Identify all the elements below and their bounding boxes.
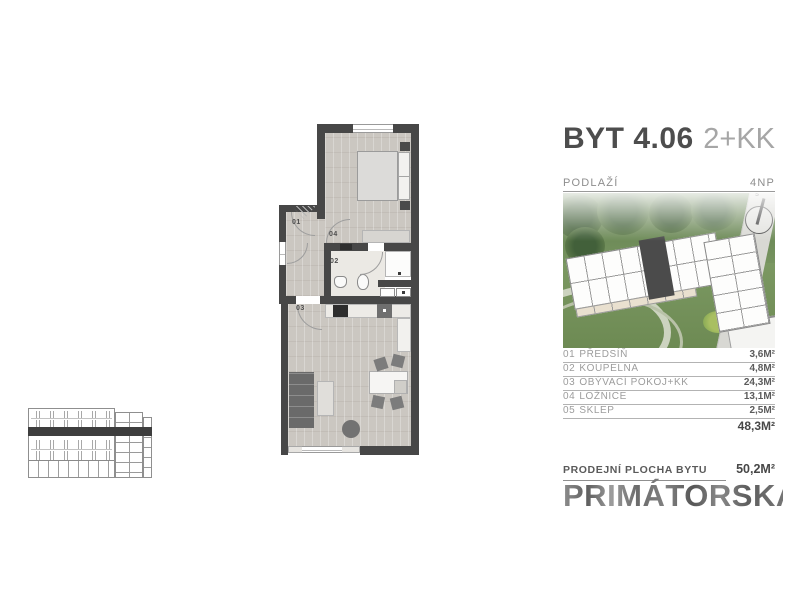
bath-wall-radiator bbox=[340, 244, 352, 250]
room-area: 3,6M² bbox=[749, 349, 775, 360]
room-name: OBÝVACÍ POKOJ+KK bbox=[579, 377, 688, 388]
toilet bbox=[357, 274, 369, 290]
bedroom-window bbox=[353, 124, 393, 133]
room-name: KOUPELNA bbox=[579, 363, 638, 374]
room-row-2: 02KOUPELNA 4,8M² bbox=[563, 363, 775, 377]
wall-right-upper bbox=[411, 124, 419, 304]
unit-layout: 2+KK bbox=[703, 123, 775, 156]
elevation-window-row-1 bbox=[31, 411, 112, 419]
washer-dot bbox=[402, 291, 405, 294]
wall-bath-living-left bbox=[286, 296, 296, 304]
room-area: 24,3M² bbox=[744, 377, 775, 388]
sale-area-value: 50,2M² bbox=[736, 462, 775, 476]
room-row-4: 04LOŽNICE 13,1M² bbox=[563, 391, 775, 405]
chair-3 bbox=[371, 395, 385, 409]
plan-label-living: 03 bbox=[296, 305, 305, 312]
room-area: 4,8M² bbox=[749, 363, 775, 374]
room-list: 01PŘEDSÍŇ 3,6M² 02KOUPELNA 4,8M² 03OBÝVA… bbox=[563, 349, 775, 433]
coffee-table bbox=[317, 381, 334, 416]
info-panel: BYT 4.06 2+KK PODLAŽÍ 4NP bbox=[563, 0, 775, 600]
room-num: 01 bbox=[563, 349, 575, 360]
highlighted-unit bbox=[639, 236, 675, 300]
living-window bbox=[302, 446, 342, 453]
side-table bbox=[394, 380, 407, 394]
nightstand-bottom bbox=[400, 201, 410, 210]
room-num: 05 bbox=[563, 405, 575, 416]
room-name: SKLEP bbox=[579, 405, 614, 416]
unit-number: BYT 4.06 bbox=[563, 122, 694, 156]
room-num: 04 bbox=[563, 391, 575, 402]
total-row: 48,3M² bbox=[563, 419, 775, 433]
bed-pillow-divider bbox=[398, 176, 410, 177]
wall-right-lower bbox=[411, 304, 419, 455]
nightstand-top bbox=[400, 142, 410, 151]
plan-label-hall: 01 bbox=[292, 219, 301, 226]
room-row-5: 05SKLEP 2,5M² bbox=[563, 405, 775, 419]
niche-dot bbox=[398, 272, 401, 275]
elevation-annex bbox=[115, 412, 143, 478]
floor-value: 4NP bbox=[750, 177, 775, 191]
floorplan-card: 01 04 02 03 BYT 4.06 2+KK PODLAŽÍ 4NP bbox=[0, 0, 800, 600]
wall-bath-living-right bbox=[320, 296, 419, 304]
washer-left bbox=[380, 288, 395, 297]
elevation-base bbox=[29, 460, 114, 477]
wall-bed-bath-right-seg bbox=[384, 243, 419, 251]
elevation-window-row-3 bbox=[31, 440, 112, 450]
elevation-highlight-band bbox=[28, 427, 152, 436]
wall-bottom-right bbox=[360, 446, 419, 455]
room-name: LOŽNICE bbox=[579, 391, 627, 402]
cooktop bbox=[333, 305, 348, 317]
room-area: 2,5M² bbox=[749, 405, 775, 416]
unit-header: BYT 4.06 2+KK bbox=[563, 120, 775, 156]
wall-niche-stub bbox=[378, 280, 419, 287]
bedroom-bench bbox=[362, 230, 410, 243]
building-elevation bbox=[28, 406, 152, 478]
room-num: 03 bbox=[563, 377, 575, 388]
wardrobe bbox=[289, 372, 314, 428]
room-row-1: 01PŘEDSÍŇ 3,6M² bbox=[563, 349, 775, 363]
tall-cabinet bbox=[397, 318, 411, 352]
elevation-main-block bbox=[28, 408, 115, 478]
room-area: 13,1M² bbox=[744, 391, 775, 402]
kitchen-sink-dot bbox=[383, 309, 386, 312]
wall-left-lower bbox=[281, 304, 288, 455]
ottoman bbox=[342, 420, 360, 438]
hall-left-door bbox=[279, 242, 286, 265]
room-name: PŘEDSÍŇ bbox=[579, 349, 628, 360]
site-map: S bbox=[563, 193, 775, 348]
sink bbox=[334, 276, 347, 288]
total-area: 48,3M² bbox=[738, 419, 775, 433]
bed bbox=[357, 151, 398, 201]
room-row-3: 03OBÝVACÍ POKOJ+KK 24,3M² bbox=[563, 377, 775, 391]
project-brand: PRIMÁTORSKÁ bbox=[563, 478, 783, 514]
plan-label-bedroom: 04 bbox=[329, 231, 338, 238]
floor-row: PODLAŽÍ 4NP bbox=[563, 177, 775, 192]
plan-label-bath: 02 bbox=[330, 258, 339, 265]
floor-label: PODLAŽÍ bbox=[563, 177, 618, 191]
sale-area-label: PRODEJNÍ PLOCHA BYTU bbox=[563, 464, 707, 476]
mist-overlay bbox=[563, 193, 775, 241]
room-num: 02 bbox=[563, 363, 575, 374]
wall-bedroom-left bbox=[317, 124, 325, 219]
